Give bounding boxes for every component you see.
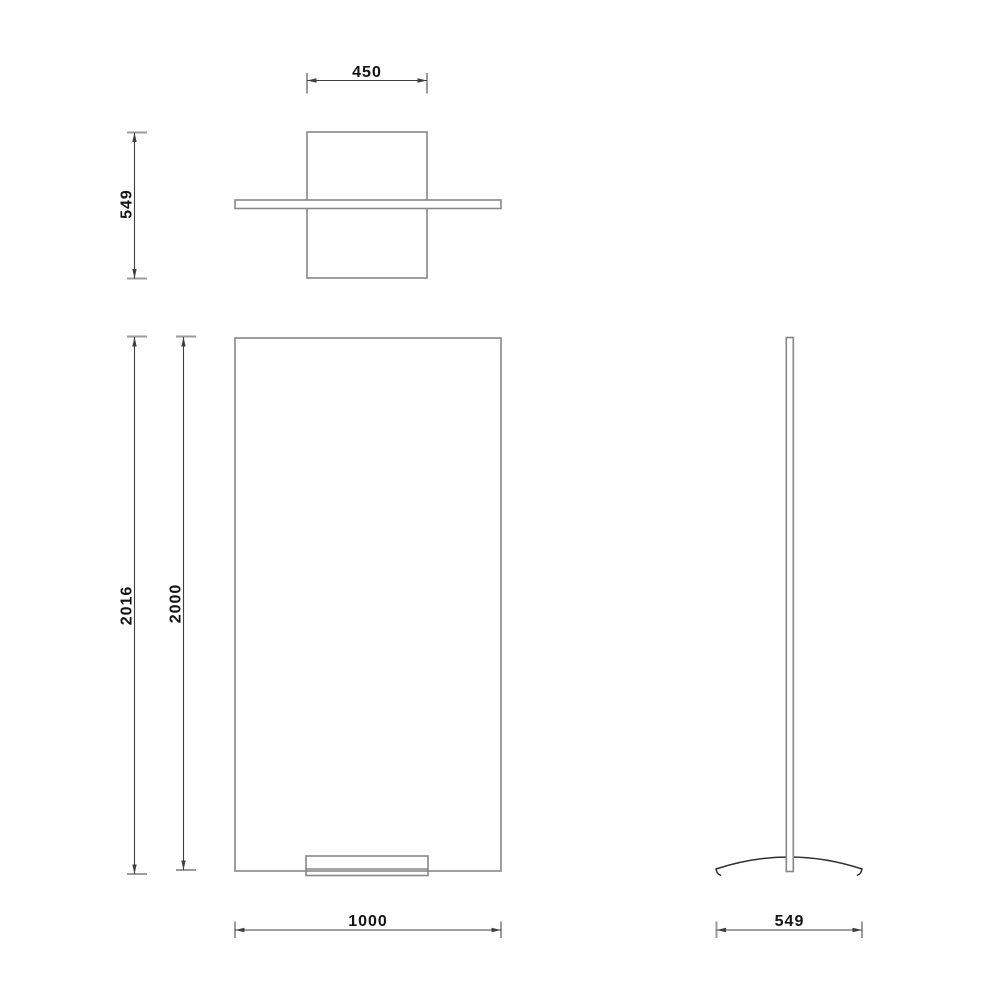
front-view-foot-plate (306, 856, 428, 876)
arrowhead-right-icon (853, 928, 863, 932)
front-view: 2016 2000 1000 (119, 337, 502, 939)
dimension-label-450: 450 (352, 64, 382, 81)
dimension-label-549-side: 549 (775, 913, 805, 930)
arrowhead-down-icon (181, 861, 185, 871)
technical-drawing-canvas: 450 549 2016 (0, 0, 1000, 1000)
side-view-foot-arc-left-tip (716, 869, 720, 875)
top-view: 450 549 (119, 64, 502, 279)
arrowhead-up-icon (132, 133, 136, 143)
dimension-label-2016: 2016 (119, 586, 136, 626)
arrowhead-left-icon (235, 928, 245, 932)
arrowhead-down-icon (132, 269, 136, 279)
side-view: 549 (716, 338, 862, 939)
arrowhead-left-icon (307, 78, 317, 82)
arrowhead-left-icon (717, 928, 727, 932)
arrowhead-up-icon (132, 337, 136, 347)
drawing-sheet: 450 549 2016 (0, 0, 1000, 1000)
side-view-panel-profile (786, 338, 793, 872)
arrowhead-right-icon (418, 78, 428, 82)
dimension-overall-height: 2016 (119, 337, 148, 875)
arrowhead-up-icon (181, 337, 185, 347)
dimension-panel-width: 1000 (235, 913, 501, 938)
top-view-panel-bar (235, 200, 501, 209)
dimension-label-549-top: 549 (119, 189, 136, 219)
dimension-panel-height: 2000 (168, 337, 197, 871)
dimension-label-1000: 1000 (348, 913, 388, 930)
dimension-top-depth: 549 (119, 133, 148, 279)
arrowhead-right-icon (492, 928, 502, 932)
dimension-label-2000: 2000 (168, 584, 185, 624)
side-view-foot-arc-right-tip (858, 869, 862, 875)
arrowhead-down-icon (132, 865, 136, 875)
dimension-base-depth: 549 (717, 913, 863, 938)
front-view-panel-outline (235, 338, 501, 871)
dimension-top-width: 450 (307, 64, 427, 94)
